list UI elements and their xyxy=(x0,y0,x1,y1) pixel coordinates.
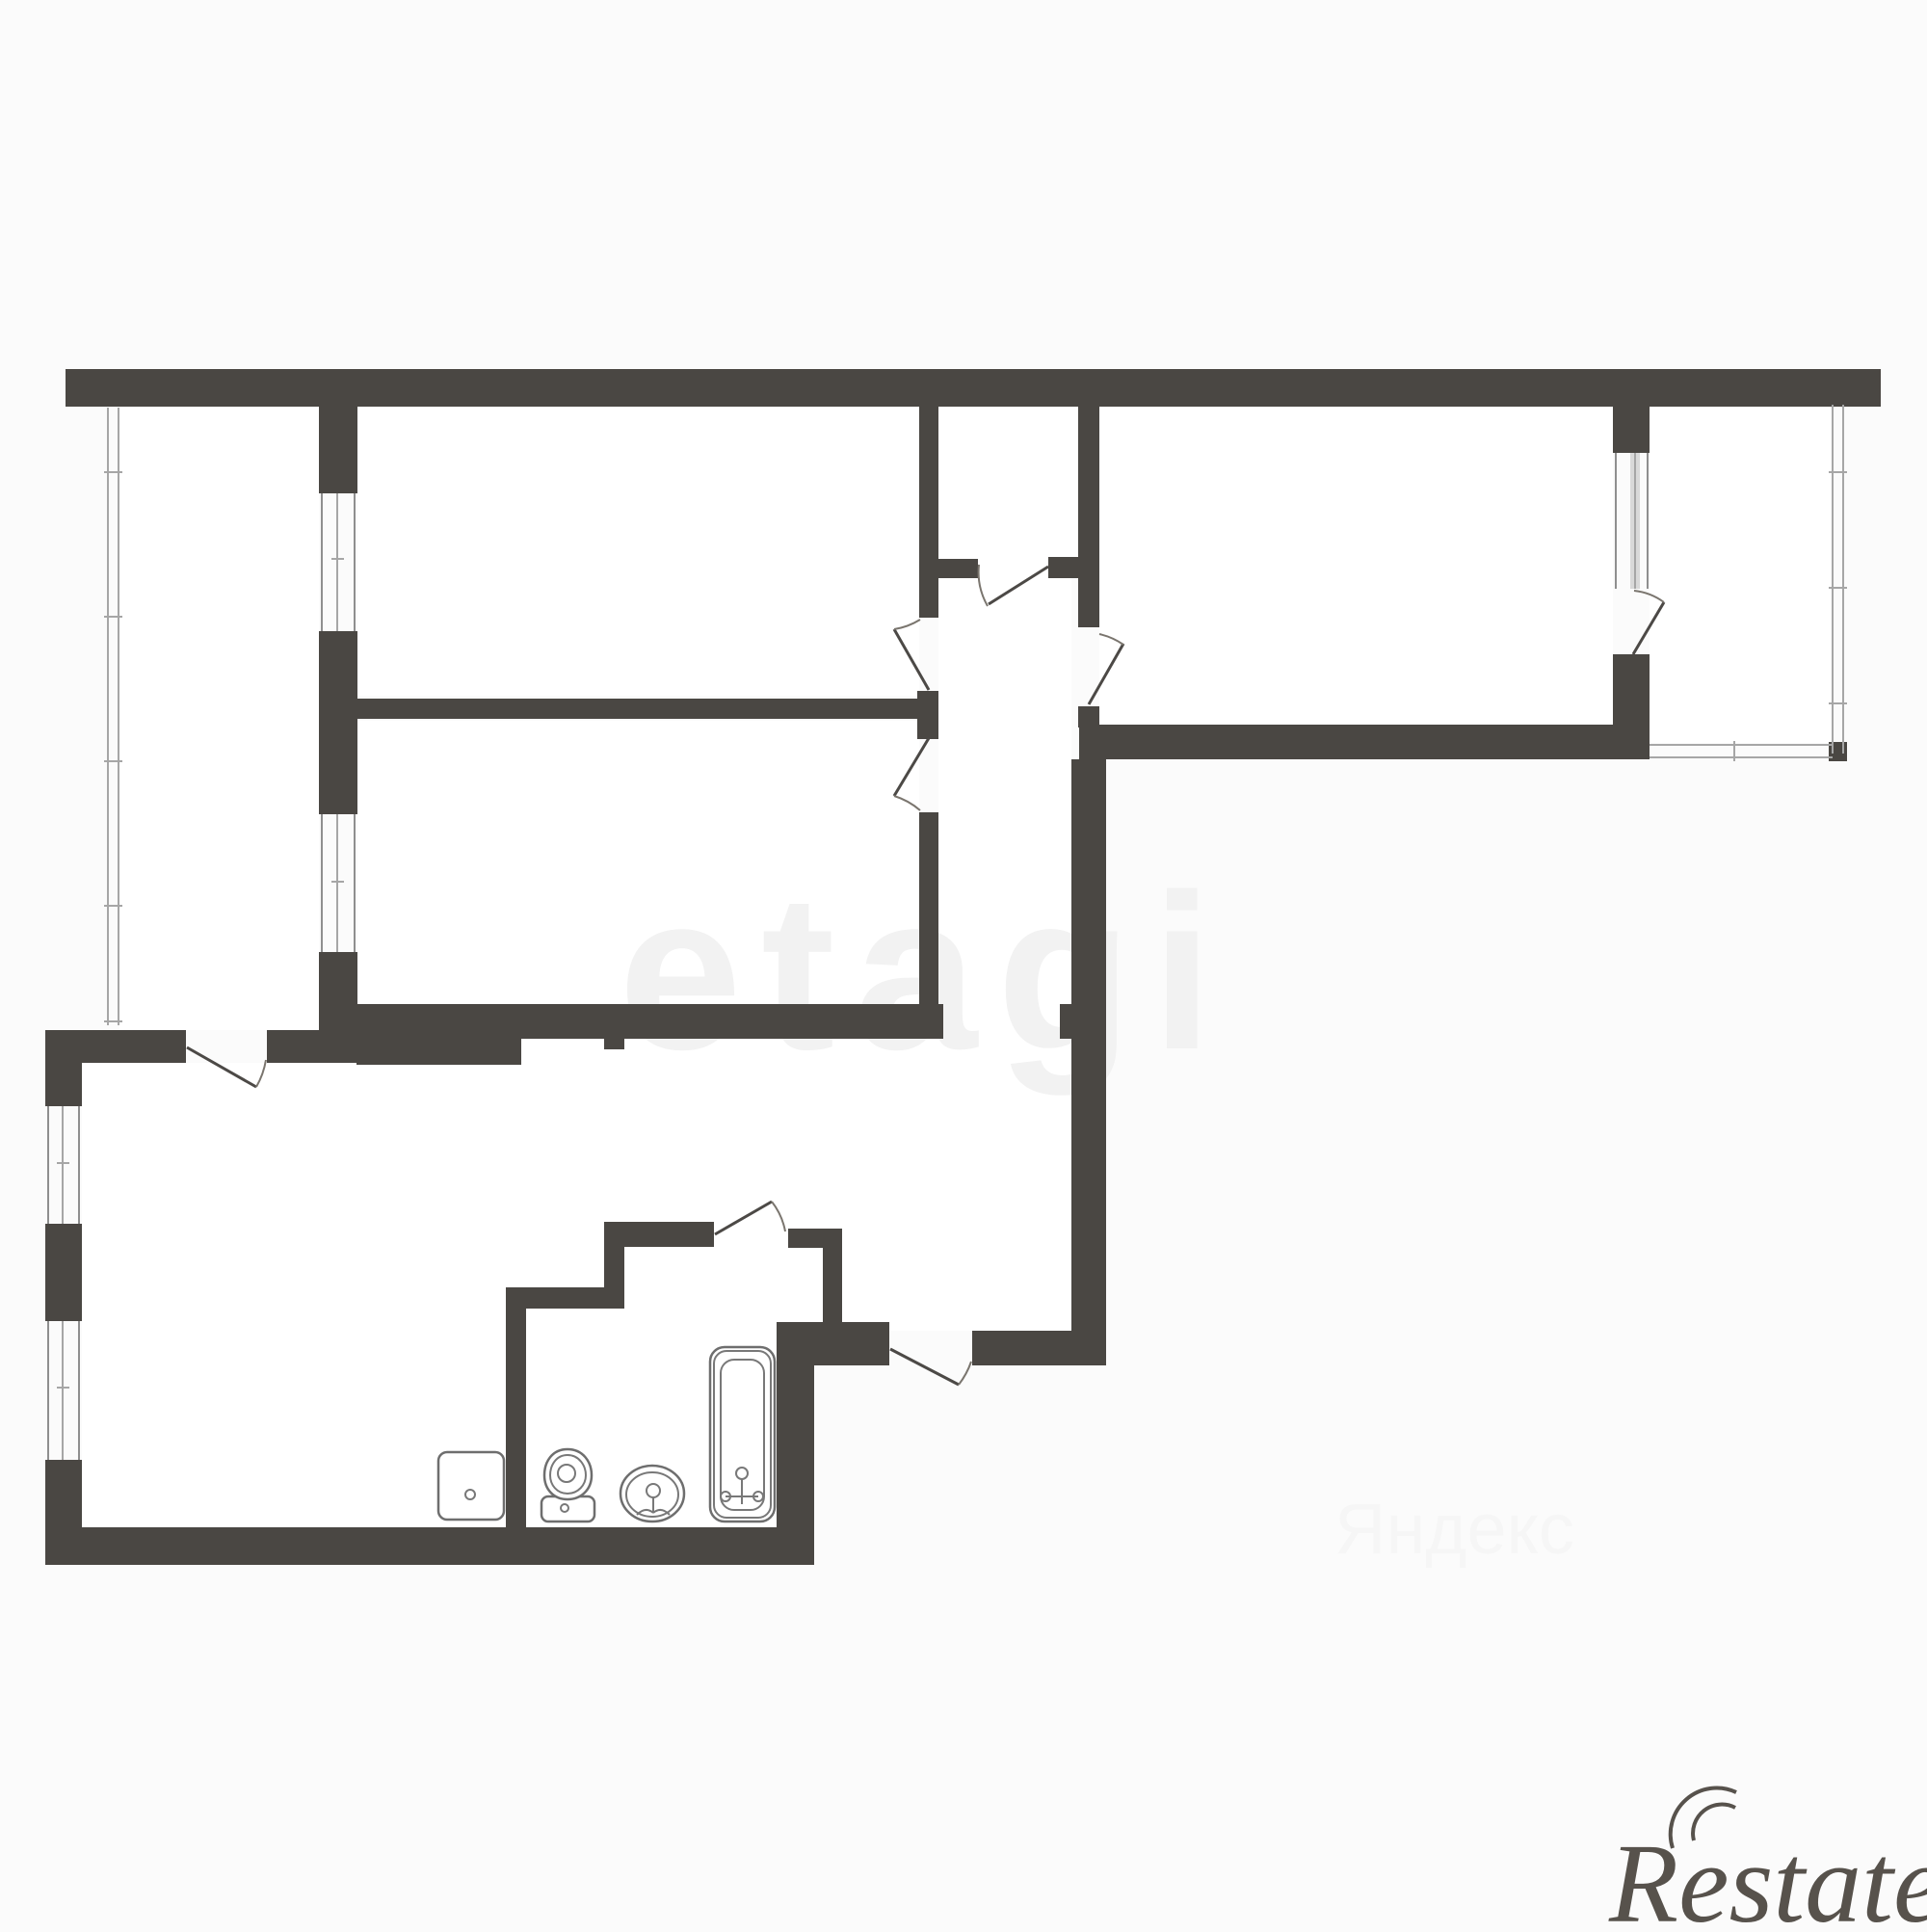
svg-text:Restate: Restate xyxy=(1608,1820,1927,1927)
svg-text:Яндекс: Яндекс xyxy=(1334,1489,1574,1569)
